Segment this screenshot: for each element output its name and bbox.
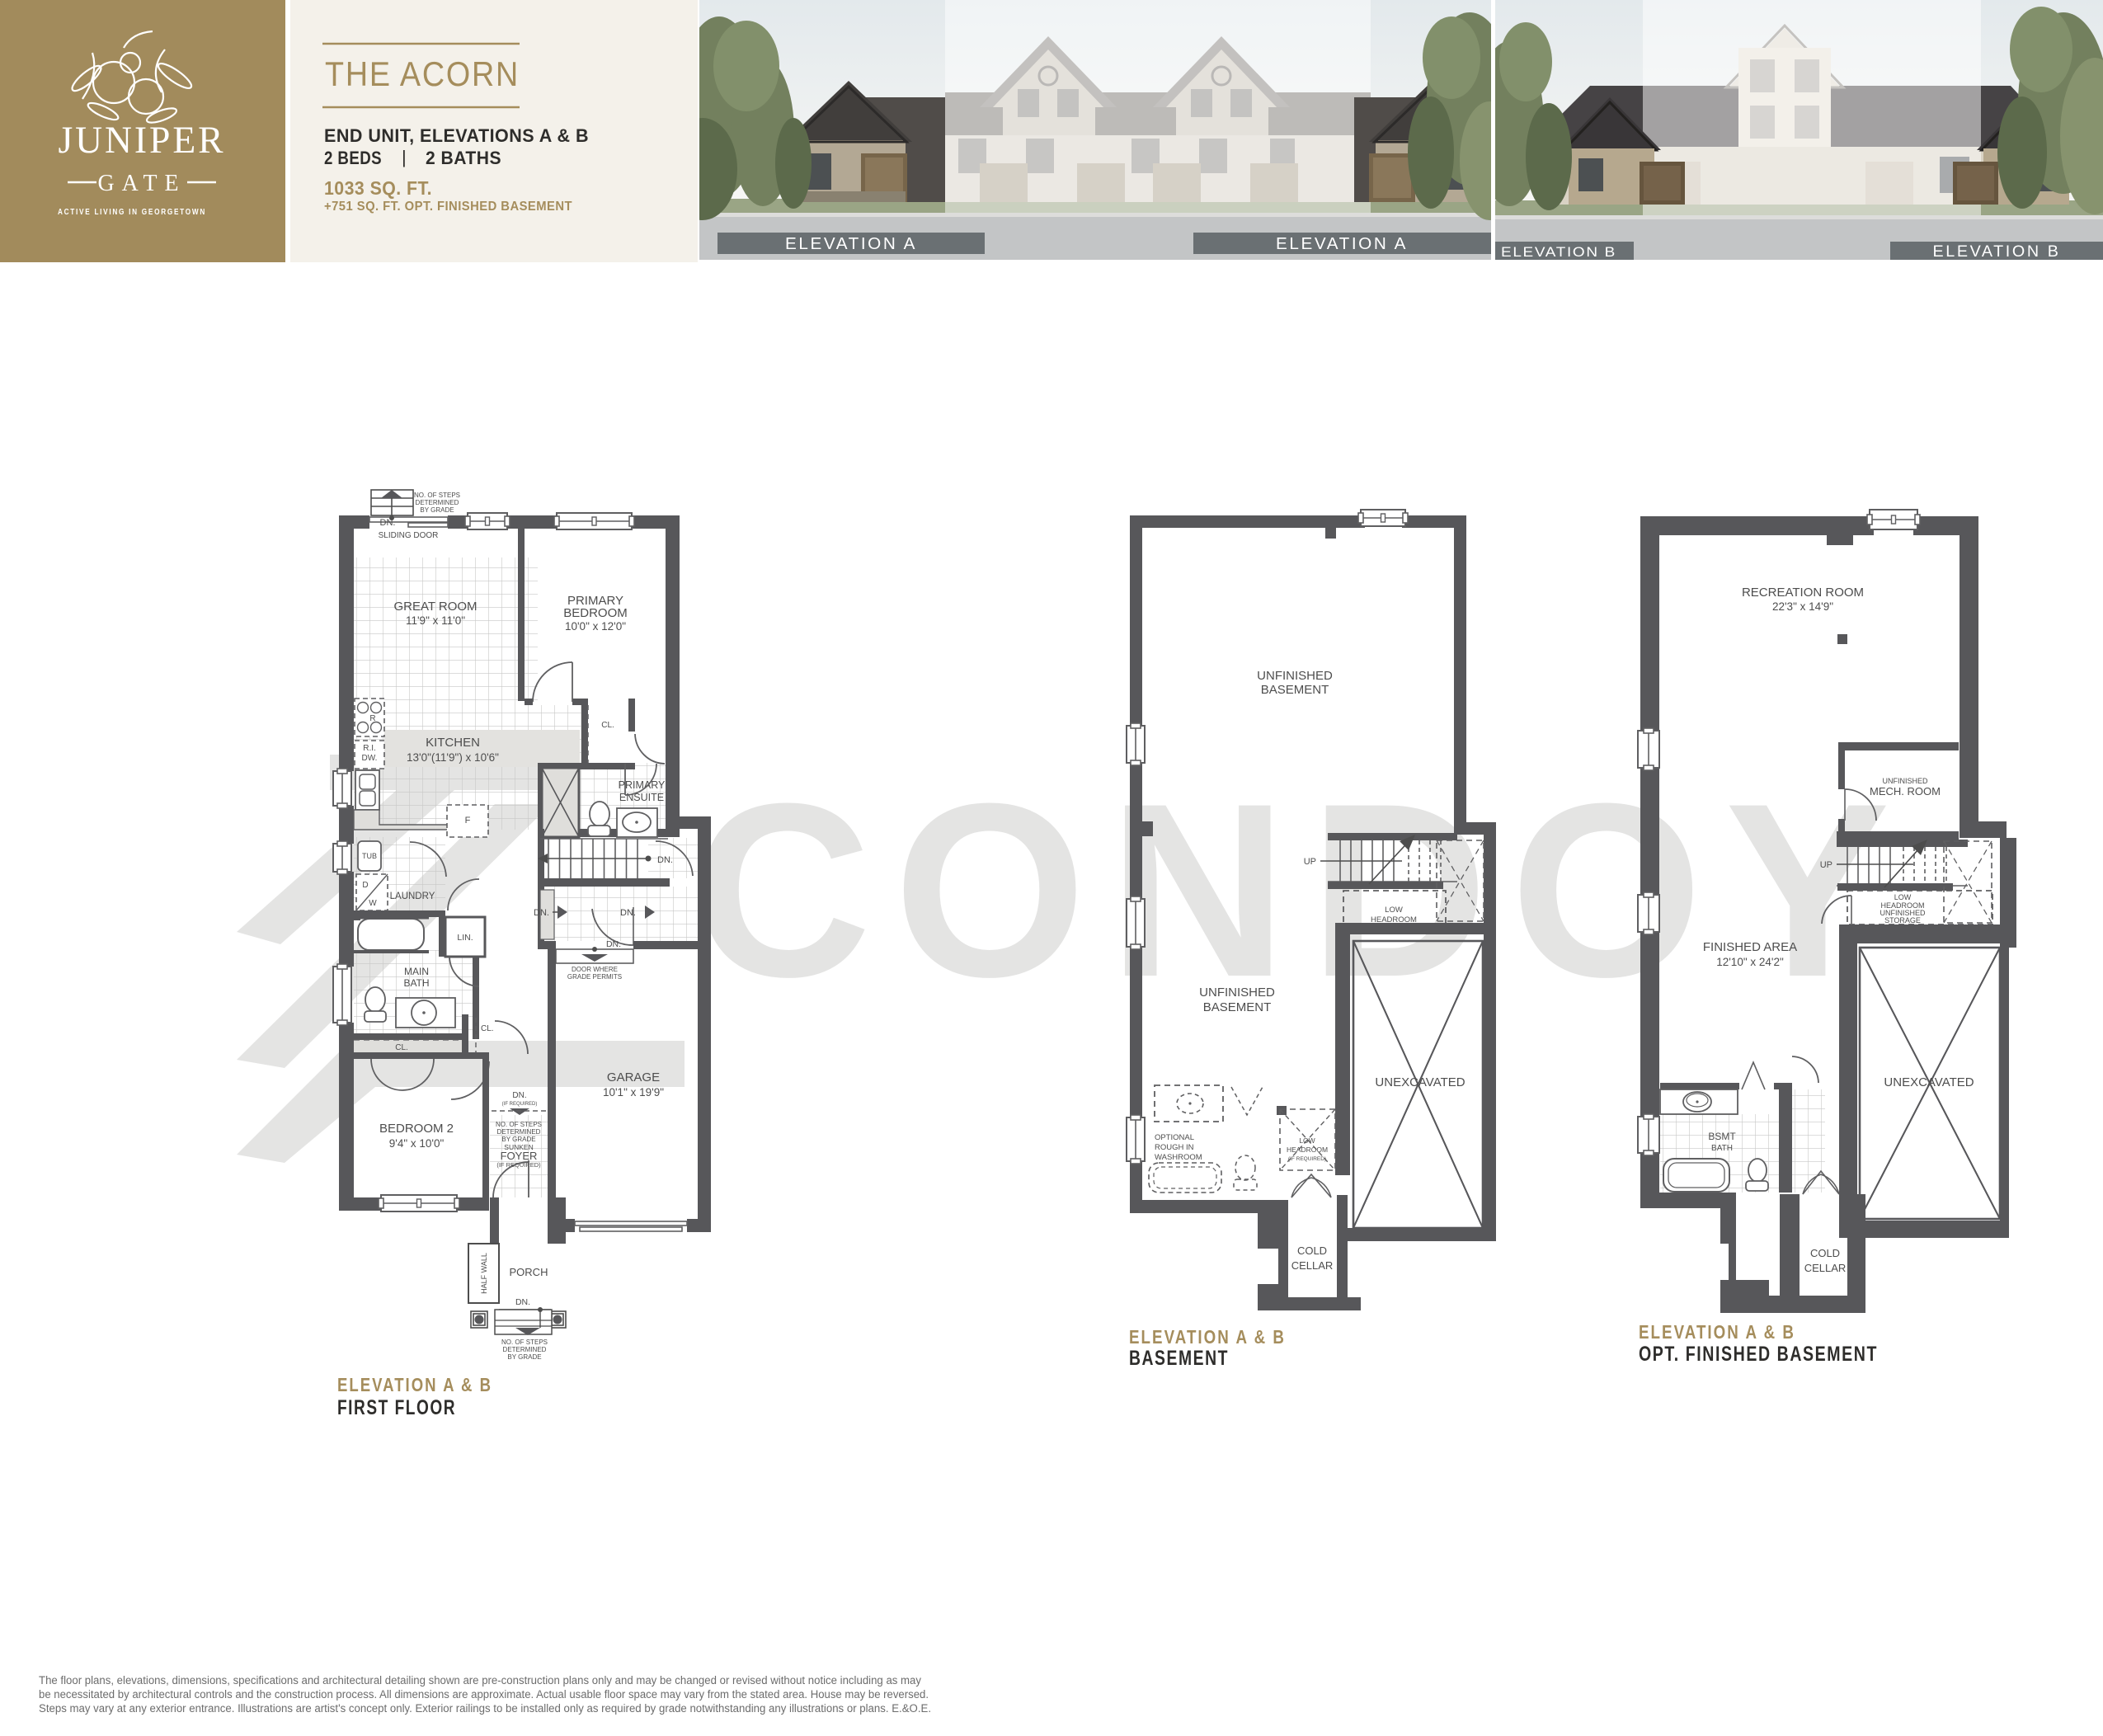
svg-text:(IF REQUIRED): (IF REQUIRED): [496, 1161, 541, 1169]
svg-text:CONDOY: CONDOY: [693, 751, 1912, 1028]
svg-text:UP: UP: [1304, 857, 1316, 867]
svg-text:OPTIONAL: OPTIONAL: [1155, 1133, 1194, 1142]
svg-text:ENSUITE: ENSUITE: [619, 792, 664, 803]
svg-text:END UNIT, ELEVATIONS A & B: END UNIT, ELEVATIONS A & B: [324, 125, 589, 146]
svg-text:LOW: LOW: [1385, 906, 1403, 915]
svg-text:RECREATION ROOM: RECREATION ROOM: [1742, 586, 1864, 600]
svg-text:BEDROOM: BEDROOM: [563, 606, 628, 620]
svg-text:OPT. FINISHED BASEMENT: OPT. FINISHED BASEMENT: [1639, 1343, 1878, 1366]
svg-text:STORAGE: STORAGE: [1884, 916, 1921, 924]
svg-text:BY GRADE: BY GRADE: [420, 506, 454, 514]
svg-text:CL.: CL.: [601, 721, 614, 730]
svg-text:THE ACORN: THE ACORN: [325, 54, 520, 93]
svg-text:12'10" x 24'2": 12'10" x 24'2": [1716, 956, 1784, 968]
svg-text:UNFINISHED: UNFINISHED: [1257, 669, 1333, 683]
svg-text:DETERMINED: DETERMINED: [497, 1128, 541, 1136]
svg-text:BASEMENT: BASEMENT: [1129, 1347, 1229, 1370]
svg-text:2 BEDS: 2 BEDS: [324, 148, 382, 168]
svg-text:GREAT ROOM: GREAT ROOM: [393, 600, 477, 614]
svg-text:UNFINISHED: UNFINISHED: [1882, 777, 1928, 785]
svg-text:KITCHEN: KITCHEN: [426, 736, 480, 750]
svg-text:BASEMENT: BASEMENT: [1261, 683, 1329, 697]
svg-text:ELEVATION B: ELEVATION B: [1501, 244, 1616, 260]
svg-text:ELEVATION A & B: ELEVATION A & B: [1639, 1321, 1795, 1343]
svg-text:BEDROOM 2: BEDROOM 2: [379, 1122, 454, 1136]
svg-text:CELLAR: CELLAR: [1804, 1262, 1847, 1274]
svg-text:GATE: GATE: [98, 171, 186, 196]
svg-text:CL.: CL.: [395, 1043, 408, 1052]
svg-text:be necessitated by architectur: be necessitated by architectural control…: [39, 1688, 929, 1701]
svg-text:Steps may vary at any exterior: Steps may vary at any exterior entrance.…: [39, 1702, 931, 1715]
svg-text:1033 SQ. FT.: 1033 SQ. FT.: [324, 177, 432, 199]
svg-text:MAIN: MAIN: [404, 966, 429, 977]
svg-text:NO. OF STEPS: NO. OF STEPS: [496, 1121, 542, 1128]
svg-text:R: R: [369, 714, 375, 723]
svg-text:UNFINISHED: UNFINISHED: [1199, 986, 1275, 1000]
svg-text:ELEVATION A & B: ELEVATION A & B: [1129, 1326, 1286, 1348]
svg-text:DETERMINED: DETERMINED: [503, 1346, 547, 1353]
svg-text:NO. OF STEPS: NO. OF STEPS: [414, 492, 460, 499]
svg-text:LOW: LOW: [1894, 893, 1912, 901]
svg-text:ELEVATION A: ELEVATION A: [1276, 235, 1408, 253]
svg-text:ELEVATION A: ELEVATION A: [785, 235, 917, 253]
svg-text:2 BATHS: 2 BATHS: [426, 148, 501, 168]
svg-text:The floor plans, elevations, d: The floor plans, elevations, dimensions,…: [39, 1674, 921, 1687]
svg-text:DW.: DW.: [362, 754, 378, 763]
svg-text:9'4" x 10'0": 9'4" x 10'0": [389, 1137, 445, 1150]
svg-text:ELEVATION A & B: ELEVATION A & B: [337, 1374, 492, 1395]
svg-text:ELEVATION B: ELEVATION B: [1933, 243, 2061, 261]
svg-text:WASHROOM: WASHROOM: [1155, 1153, 1202, 1162]
svg-text:GRADE PERMITS: GRADE PERMITS: [567, 973, 622, 981]
svg-text:JUNIPER: JUNIPER: [59, 119, 226, 162]
svg-text:SLIDING DOOR: SLIDING DOOR: [379, 531, 439, 540]
svg-text:F: F: [465, 816, 471, 826]
svg-text:MECH. ROOM: MECH. ROOM: [1870, 785, 1941, 797]
svg-text:ACTIVE LIVING IN GEORGETOWN: ACTIVE LIVING IN GEORGETOWN: [58, 207, 206, 217]
svg-text:BATH: BATH: [1711, 1144, 1733, 1153]
svg-text:BSMT: BSMT: [1708, 1131, 1736, 1142]
svg-text:BY GRADE: BY GRADE: [501, 1136, 535, 1143]
svg-text:11'9" x 11'0": 11'9" x 11'0": [406, 614, 465, 627]
svg-text:BY GRADE: BY GRADE: [507, 1353, 541, 1361]
svg-text:LAUNDRY: LAUNDRY: [390, 892, 435, 901]
svg-text:ROUGH IN: ROUGH IN: [1155, 1143, 1194, 1152]
svg-text:LIN.: LIN.: [457, 933, 473, 943]
svg-text:GARAGE: GARAGE: [607, 1070, 660, 1084]
svg-text:LOW: LOW: [1299, 1136, 1315, 1145]
svg-text:DOOR WHERE: DOOR WHERE: [572, 966, 618, 973]
svg-text:HEADROOM: HEADROOM: [1287, 1146, 1328, 1154]
svg-text:FIRST FLOOR: FIRST FLOOR: [337, 1396, 456, 1419]
svg-text:CELLAR: CELLAR: [1291, 1259, 1334, 1272]
svg-text:DN.: DN.: [657, 855, 673, 865]
svg-text:D: D: [362, 881, 368, 890]
svg-text:DN.: DN.: [512, 1091, 526, 1100]
svg-text:BASEMENT: BASEMENT: [1203, 1000, 1272, 1014]
svg-text:HALF WALL: HALF WALL: [480, 1253, 488, 1294]
svg-text:(IF REQUIRED): (IF REQUIRED): [502, 1102, 538, 1107]
svg-text:BATH: BATH: [403, 977, 429, 989]
svg-text:10'0" x 12'0": 10'0" x 12'0": [565, 620, 626, 633]
svg-text:FINISHED AREA: FINISHED AREA: [1703, 940, 1797, 954]
svg-text:W: W: [369, 899, 377, 908]
svg-text:DN.: DN.: [606, 939, 621, 949]
svg-text:+751 SQ. FT. OPT. FINISHED BAS: +751 SQ. FT. OPT. FINISHED BASEMENT: [324, 200, 572, 214]
svg-text:|: |: [402, 147, 407, 167]
svg-text:NO. OF STEPS: NO. OF STEPS: [501, 1338, 548, 1346]
svg-text:(IF REQUIRED): (IF REQUIRED): [1288, 1156, 1326, 1162]
svg-text:DN.: DN.: [515, 1297, 530, 1307]
svg-text:COLD: COLD: [1810, 1247, 1840, 1259]
svg-text:UP: UP: [1820, 860, 1832, 870]
svg-text:R.I.: R.I.: [363, 744, 376, 753]
svg-text:22'3" x 14'9": 22'3" x 14'9": [1772, 600, 1833, 613]
svg-text:CL.: CL.: [481, 1024, 494, 1033]
svg-text:DN.: DN.: [534, 908, 549, 918]
svg-text:TUB: TUB: [362, 852, 377, 860]
svg-text:13'0"(11'9") x 10'6": 13'0"(11'9") x 10'6": [407, 751, 499, 764]
svg-text:10'1" x 19'9": 10'1" x 19'9": [603, 1086, 664, 1099]
svg-text:PORCH: PORCH: [510, 1266, 548, 1278]
svg-text:UNEXCAVATED: UNEXCAVATED: [1884, 1075, 1974, 1089]
svg-text:FOYER: FOYER: [501, 1150, 538, 1162]
svg-text:UNEXCAVATED: UNEXCAVATED: [1375, 1075, 1465, 1089]
svg-text:DETERMINED: DETERMINED: [416, 499, 459, 506]
svg-text:COLD: COLD: [1297, 1244, 1327, 1257]
